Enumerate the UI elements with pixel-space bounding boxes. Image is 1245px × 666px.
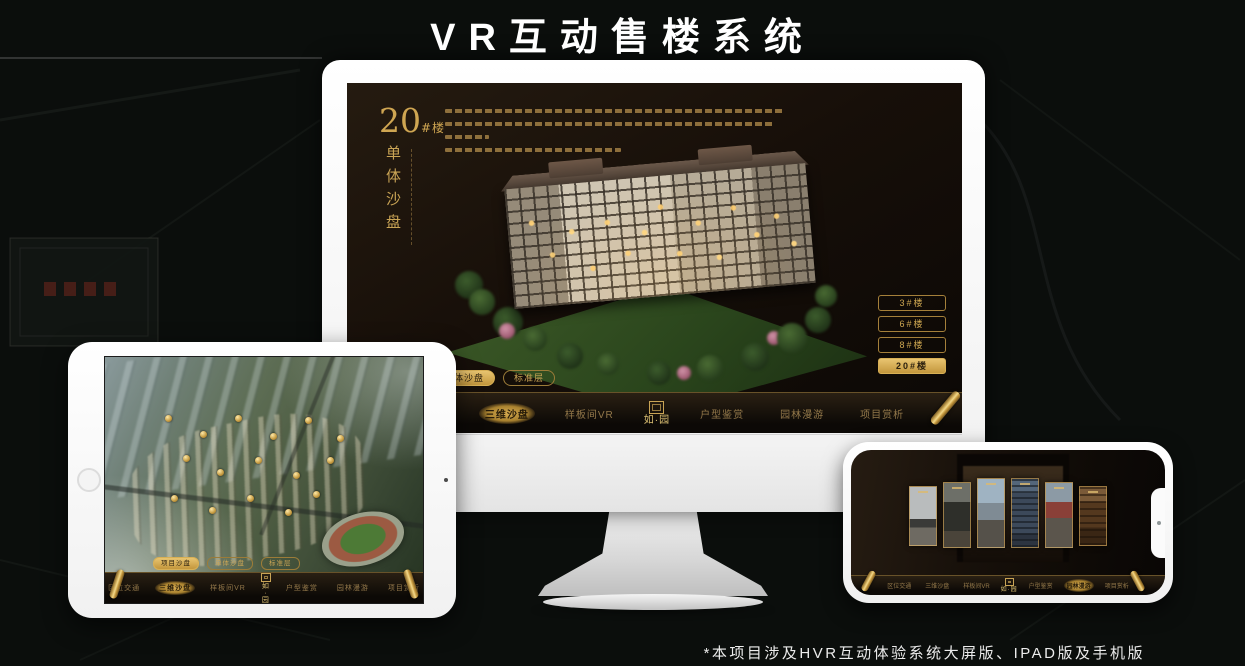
building-badge[interactable]	[327, 457, 334, 464]
nav-item-3d-sandbox-active[interactable]: 三维沙盘	[155, 581, 195, 595]
intro-text-line	[445, 148, 621, 152]
building-badge[interactable]	[270, 433, 277, 440]
floor-button-3[interactable]: 3#楼	[878, 295, 946, 311]
tree	[557, 343, 583, 369]
nav-item-project-view[interactable]: 项目赏析	[854, 403, 910, 424]
tree	[597, 353, 619, 375]
intro-text-line	[445, 122, 773, 126]
monitor-stand-foot	[543, 594, 763, 610]
scene-panel-interior[interactable]	[909, 486, 937, 546]
tablet-home-button[interactable]	[77, 468, 101, 492]
page-title: VR互动售楼系统	[0, 6, 1245, 61]
floor-button-8[interactable]: 8#楼	[878, 337, 946, 353]
tree	[741, 343, 769, 371]
tree	[697, 355, 723, 381]
nav-item-3d-sandbox[interactable]: 三维沙盘	[922, 579, 952, 592]
scene-panel-row	[909, 478, 1107, 548]
phone-screen: 区位交通 三维沙盘 样板间VR 如·园 户型鉴赏 园林漫游 项目赏析	[851, 450, 1165, 595]
header-divider	[411, 149, 412, 245]
building-badge[interactable]	[200, 431, 207, 438]
tree	[815, 285, 837, 307]
nav-item-garden-roam[interactable]: 园林漫游	[774, 403, 830, 424]
nav-item-showroom-vr[interactable]: 样板间VR	[559, 403, 620, 424]
phone-navbar: 区位交通 三维沙盘 样板间VR 如·园 户型鉴赏 园林漫游 项目赏析	[851, 575, 1165, 595]
brand-logo: 如·园	[1001, 578, 1018, 593]
brand-seal-icon	[649, 401, 664, 414]
footnote: *本项目涉及HVR互动体验系统大屏版、IPAD版及手机版	[704, 642, 1145, 663]
tree	[647, 361, 671, 385]
phone-device: 区位交通 三维沙盘 样板间VR 如·园 户型鉴赏 园林漫游 项目赏析	[843, 442, 1173, 603]
tablet-camera-icon	[444, 478, 448, 482]
subtab-standard-floor[interactable]: 标准层	[261, 557, 300, 570]
nav-item-showroom-vr[interactable]: 样板间VR	[206, 581, 250, 595]
building-lit-windows	[504, 163, 815, 309]
subtab-project-sandbox-active[interactable]: 项目沙盘	[153, 557, 199, 570]
intro-text-line	[445, 109, 785, 113]
brand-seal-icon	[1005, 578, 1014, 586]
building-number-heading: 20#楼	[379, 101, 445, 140]
nav-item-garden-roam[interactable]: 园林漫游	[333, 581, 373, 595]
tree	[805, 307, 831, 333]
nav-item-3d-sandbox-active[interactable]: 三维沙盘	[479, 403, 535, 424]
nav-item-unit-gallery[interactable]: 户型鉴赏	[694, 403, 750, 424]
building-unit: #楼	[421, 121, 445, 135]
floor-button-group: 3#楼 6#楼 8#楼 20#楼	[878, 295, 946, 379]
phone-camera-icon	[1157, 521, 1161, 525]
scene-panel-exterior[interactable]	[977, 478, 1005, 548]
brand-logo: 如·园	[644, 401, 670, 426]
building-badge[interactable]	[165, 415, 172, 422]
brand-logo: 如·园	[261, 573, 271, 604]
building-badge[interactable]	[183, 455, 190, 462]
scene-panel-redwall[interactable]	[1045, 482, 1073, 548]
section-title-vertical: 单体沙盘	[383, 145, 404, 237]
building-badge[interactable]	[255, 457, 262, 464]
tablet-subtabs: 项目沙盘 单体沙盘 标准层	[153, 557, 300, 570]
flower-tree	[677, 366, 691, 380]
nav-item-unit-gallery[interactable]: 户型鉴赏	[282, 581, 322, 595]
nav-item-unit-gallery[interactable]: 户型鉴赏	[1026, 579, 1056, 592]
floor-button-6[interactable]: 6#楼	[878, 316, 946, 332]
tablet-navbar: 区位交通 三维沙盘 样板间VR 如·园 户型鉴赏 园林漫游 项目赏析	[105, 572, 423, 603]
tablet-screen: 项目沙盘 单体沙盘 标准层 区位交通 三维沙盘 样板间VR 如·园 户型鉴赏 园…	[104, 356, 424, 604]
building-badge[interactable]	[209, 507, 216, 514]
brand-logo-text: 如·园	[644, 416, 670, 426]
tablet-device: 项目沙盘 单体沙盘 标准层 区位交通 三维沙盘 样板间VR 如·园 户型鉴赏 园…	[68, 342, 456, 618]
tree	[777, 323, 807, 353]
building-badge[interactable]	[247, 495, 254, 502]
page: 20#楼 单体沙盘	[0, 0, 1245, 666]
building-badge[interactable]	[305, 417, 312, 424]
building-model[interactable]	[503, 150, 817, 322]
nav-item-garden-roam-active[interactable]: 园林漫游	[1064, 579, 1094, 592]
brand-logo-text: 如·园	[261, 583, 271, 604]
floor-button-20-active[interactable]: 20#楼	[878, 358, 946, 374]
building-badge[interactable]	[285, 509, 292, 516]
nav-item-showroom-vr[interactable]: 样板间VR	[960, 579, 992, 592]
subtab-single-sandbox[interactable]: 单体沙盘	[207, 557, 253, 570]
scene-panel-shelf[interactable]	[1079, 486, 1107, 546]
brand-seal-icon	[261, 573, 271, 582]
tree	[469, 289, 495, 315]
building-badge[interactable]	[293, 472, 300, 479]
building-badge[interactable]	[217, 469, 224, 476]
scene-panel-building[interactable]	[1011, 478, 1039, 548]
intro-text-line	[445, 135, 489, 139]
subtab-standard-floor[interactable]: 标准层	[503, 370, 555, 386]
nav-item-project-view[interactable]: 项目赏析	[1102, 579, 1132, 592]
building-badge[interactable]	[313, 491, 320, 498]
flower-tree	[499, 323, 515, 339]
building-number: 20	[379, 101, 421, 140]
nav-item-location[interactable]: 区位交通	[884, 579, 914, 592]
building-badge[interactable]	[235, 415, 242, 422]
tree	[523, 327, 547, 351]
scene-panel-lobby[interactable]	[943, 482, 971, 548]
building-badge[interactable]	[337, 435, 344, 442]
phone-notch	[1151, 488, 1165, 558]
building-badge[interactable]	[171, 495, 178, 502]
brand-logo-text: 如·园	[1001, 587, 1018, 593]
